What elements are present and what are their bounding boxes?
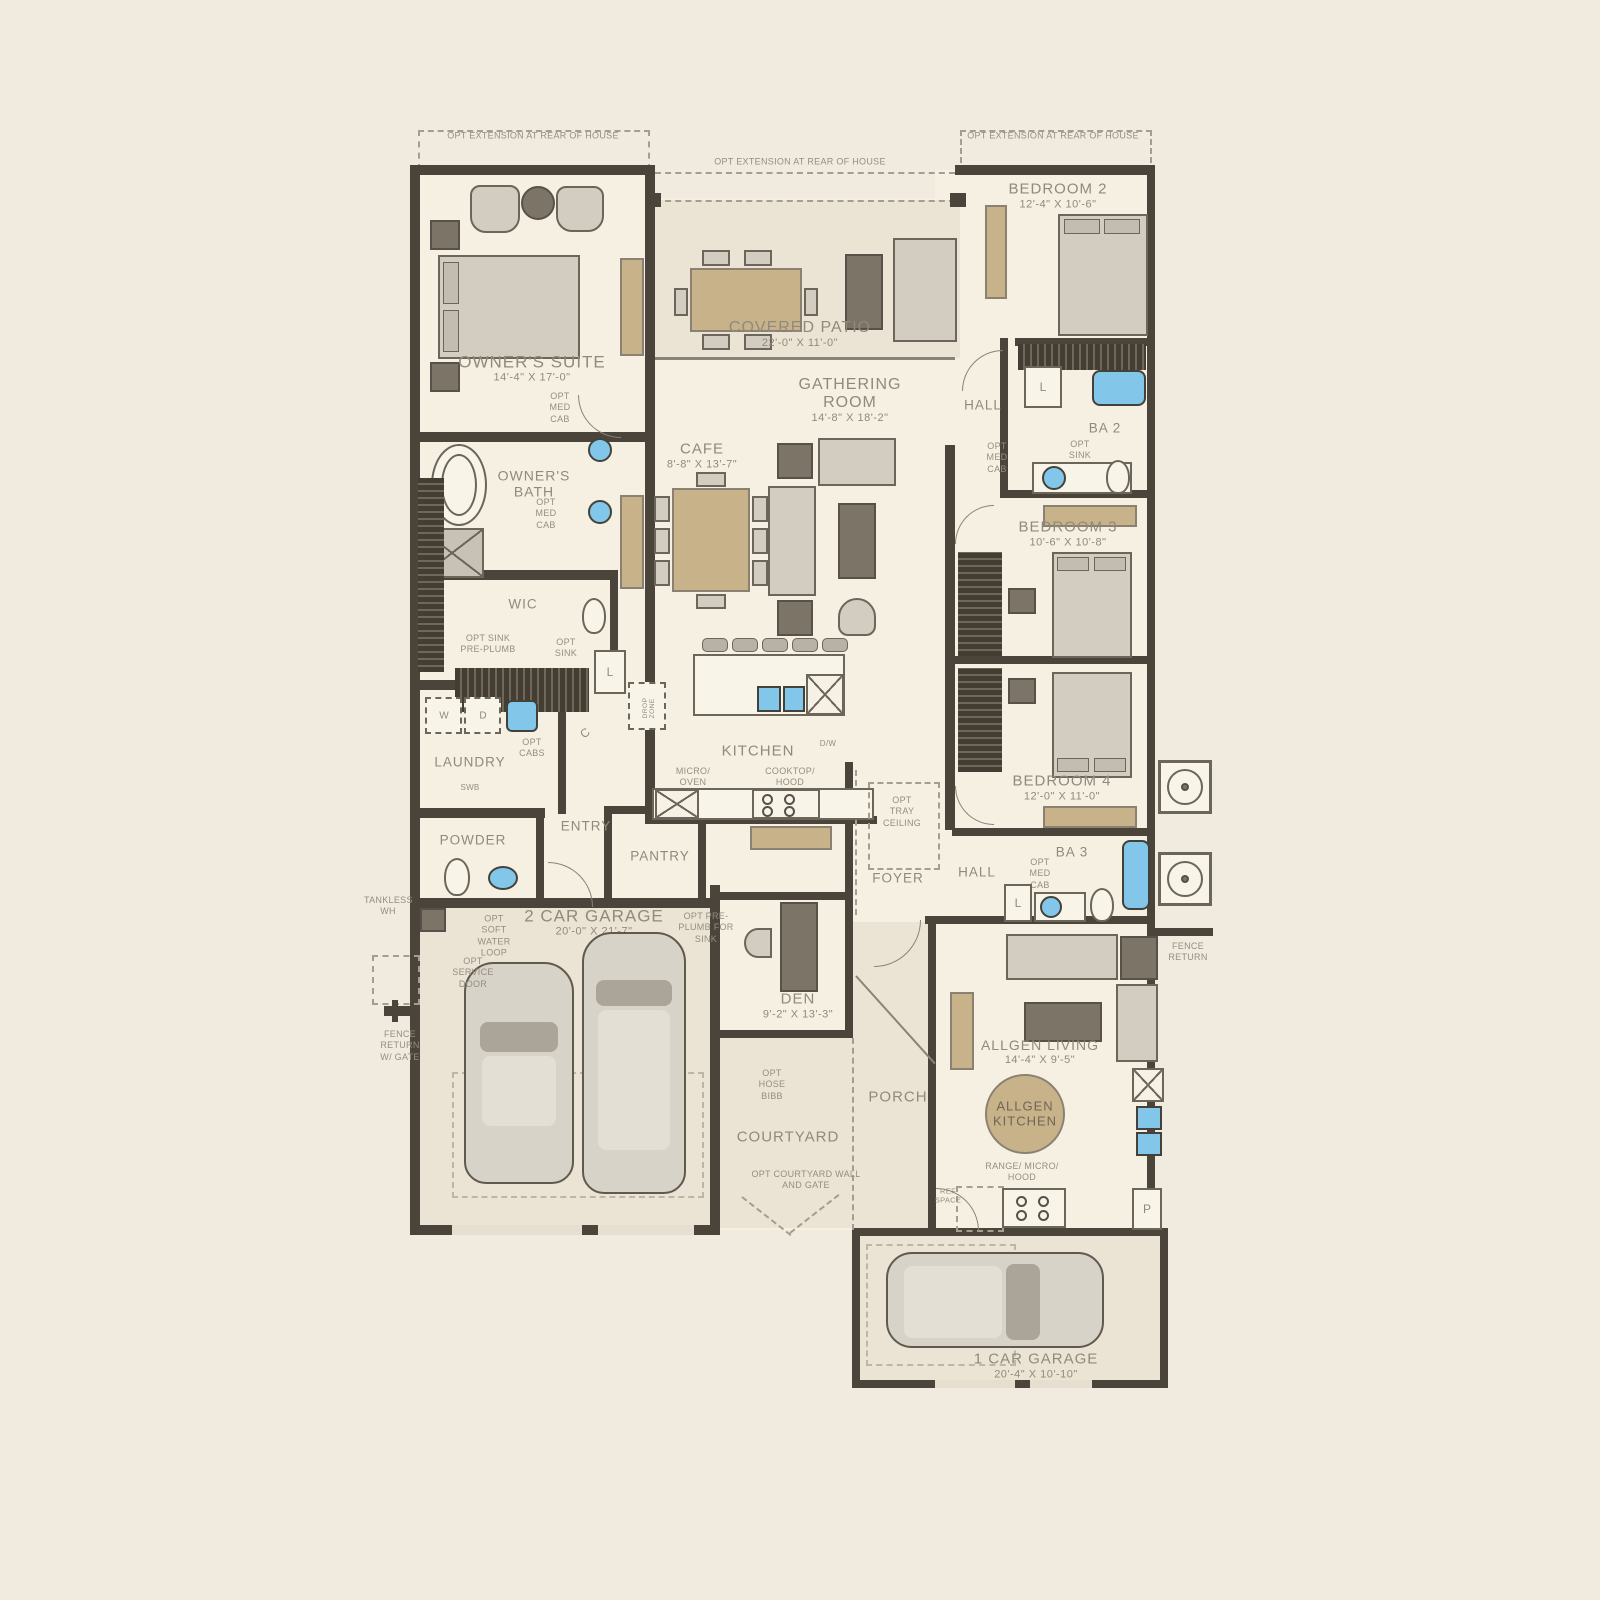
toilet <box>444 858 470 896</box>
room-name: BA 2 <box>1089 420 1122 435</box>
wall <box>710 892 853 900</box>
armchair <box>470 185 520 233</box>
dryer-letter: D <box>479 711 486 722</box>
room-dims: 14'-8" X 18'-2" <box>791 412 909 424</box>
round-table <box>521 186 555 220</box>
wall <box>710 1030 853 1038</box>
porch-slab <box>852 922 932 1230</box>
room-name: OWNER'S SUITE <box>442 352 622 371</box>
sofa <box>818 438 896 486</box>
linen-letter: L <box>607 665 614 679</box>
gathering-label: GATHERING ROOM 14'-8" X 18'-2" <box>791 376 909 424</box>
bar-stool <box>822 638 848 652</box>
room-name: COURTYARD <box>737 1130 840 1147</box>
floor-plan: OPT EXTENSION AT REAR OF HOUSE OPT EXTEN… <box>0 0 1600 1600</box>
toilet <box>1090 888 1114 922</box>
car-hood <box>904 1266 1002 1338</box>
room-dims: 8'-8" X 13'-7" <box>647 458 757 470</box>
cabinet <box>1132 1068 1164 1102</box>
wall <box>645 193 661 207</box>
pantry-letter: P <box>1143 1202 1151 1216</box>
windshield <box>1006 1264 1040 1340</box>
toilet <box>582 598 606 634</box>
owner-bed <box>438 255 580 359</box>
allgen-kitchen-label: ALLGEN KITCHEN <box>987 1099 1063 1128</box>
bench <box>620 258 644 356</box>
fence-return-line <box>1155 928 1213 936</box>
micro-oven-note: MICRO/ OVEN <box>672 766 714 789</box>
sink <box>1042 466 1066 490</box>
garage2-door-opening <box>452 1225 582 1235</box>
bathtub-oval-inner <box>441 454 477 516</box>
opt-courtyard-wall-note: OPT COURTYARD WALL AND GATE <box>751 1169 861 1192</box>
pillow <box>1057 758 1089 772</box>
room-name: BA 3 <box>1056 844 1089 859</box>
courtyard-porch-edge <box>852 1038 854 1230</box>
dresser <box>1043 806 1137 828</box>
closet-rod <box>958 668 1002 772</box>
patio-open-edge <box>655 200 955 202</box>
room-dims: 22'-0" X 11'-0" <box>700 337 900 349</box>
burner-icon <box>784 794 795 805</box>
room-name: KITCHEN <box>722 744 795 761</box>
room-name: DEN <box>743 991 853 1008</box>
kitchenette-sink <box>1136 1106 1162 1130</box>
chair <box>702 250 730 266</box>
room-dims: 14'-4" X 17'-0" <box>442 371 622 383</box>
hall-rear-label: HALL <box>964 397 1002 412</box>
room-dims: 9'-2" X 13'-3" <box>743 1008 853 1020</box>
sideboard <box>620 495 644 589</box>
room-dims: 14'-4" X 9'-5" <box>955 1054 1125 1066</box>
wall <box>852 1228 1168 1236</box>
wall <box>928 916 936 1232</box>
laundry-sink <box>506 700 538 732</box>
room-name: WIC <box>508 596 537 611</box>
bar-stool <box>702 638 728 652</box>
sectional-sofa <box>768 486 816 596</box>
sink <box>1040 896 1062 918</box>
nightstand <box>430 220 460 250</box>
entry-label: ENTRY <box>561 818 612 833</box>
cafe-label: CAFE 8'-8" X 13'-7" <box>647 441 757 470</box>
room-name: FOYER <box>872 870 924 885</box>
chair <box>752 496 768 522</box>
patio-slider <box>655 357 955 360</box>
opt-sink-note: OPT SINK <box>549 637 583 660</box>
cafe-table <box>672 488 750 592</box>
sink <box>588 438 612 462</box>
wic-label: WIC <box>508 596 537 611</box>
chair <box>752 560 768 586</box>
wall <box>945 445 955 830</box>
ac-fan-hub <box>1181 783 1189 791</box>
pedestal-sink <box>488 866 518 890</box>
owners-bath-label: OWNER'S BATH <box>494 468 574 499</box>
wall <box>852 1228 860 1388</box>
den-label: DEN 9'-2" X 13'-3" <box>743 991 853 1020</box>
windshield <box>596 980 672 1006</box>
porch-label: PORCH <box>868 1090 927 1107</box>
wall <box>645 432 655 822</box>
bar-stool <box>732 638 758 652</box>
room-name: BEDROOM 2 <box>978 181 1138 198</box>
wall <box>410 808 545 818</box>
opt-soft-water-note: OPT SOFT WATER LOOP <box>474 914 514 959</box>
pillow <box>443 262 459 304</box>
car-top-view <box>464 962 574 1184</box>
chair <box>696 472 726 487</box>
courtyard-label: COURTYARD <box>737 1130 840 1147</box>
car-roof <box>598 1010 670 1150</box>
wall <box>645 165 655 445</box>
suv-top-view <box>582 932 686 1194</box>
sofa <box>1006 934 1118 980</box>
wall <box>952 828 1155 836</box>
cooktop-hood-note: COOKTOP/ HOOD <box>764 766 816 789</box>
coffee-table <box>1024 1002 1102 1042</box>
room-dims: 12'-4" X 10'-6" <box>978 198 1138 210</box>
opt-service-door-zone <box>372 955 420 1005</box>
pantry-label: PANTRY <box>630 848 690 863</box>
opt-tray-ceiling-note: OPT TRAY CEILING <box>879 795 925 829</box>
kitchen-shelf <box>750 826 832 850</box>
laundry-label: LAUNDRY <box>434 754 505 769</box>
opt-med-cab-note: OPT MED CAB <box>528 497 564 531</box>
foyer-label: FOYER <box>872 870 924 885</box>
dw-note: D/W <box>815 739 841 749</box>
room-name: PORCH <box>868 1090 927 1107</box>
ac-fan-hub <box>1181 875 1189 883</box>
owners-suite-label: OWNER'S SUITE 14'-4" X 17'-0" <box>442 352 622 383</box>
ba3-label: BA 3 <box>1056 844 1089 859</box>
room-name: BEDROOM 3 <box>988 519 1148 536</box>
room-name: ALLGEN KITCHEN <box>987 1099 1063 1128</box>
garage2-door-opening <box>598 1225 694 1235</box>
opt-sink-note: OPT SINK <box>1065 439 1095 462</box>
drop-zone-cabinet: DROP ZONE <box>628 682 666 730</box>
swb-note: SWB <box>460 783 479 793</box>
pillow <box>1094 557 1126 571</box>
wall <box>536 808 544 906</box>
fence-return-gate-note: FENCE RETURN W/ GATE <box>374 1029 426 1063</box>
burner-icon <box>1038 1196 1049 1207</box>
tankless-wh-note: TANKLESS WH <box>364 895 412 918</box>
pillow <box>1094 758 1126 772</box>
burner-icon <box>762 806 773 817</box>
chair <box>654 496 670 522</box>
dresser <box>985 205 1007 299</box>
car-top-view <box>886 1252 1104 1348</box>
burner-icon <box>1016 1210 1027 1221</box>
media-console <box>838 503 876 579</box>
bedroom3-label: BEDROOM 3 10'-6" X 10'-8" <box>988 519 1148 548</box>
chair <box>654 560 670 586</box>
kitchenette-sink <box>1136 1132 1162 1156</box>
patio-sofa <box>893 238 957 342</box>
range <box>1002 1188 1066 1228</box>
room-name: ALLGEN LIVING <box>955 1038 1125 1054</box>
room-name: POWDER <box>440 832 507 847</box>
opt-cabs-note: OPT CABS <box>515 737 549 760</box>
bar-stool <box>792 638 818 652</box>
powder-label: POWDER <box>440 832 507 847</box>
chair <box>654 528 670 554</box>
room-name: PANTRY <box>630 848 690 863</box>
room-dims: 10'-6" X 10'-8" <box>988 536 1148 548</box>
wall <box>410 165 655 175</box>
pillow <box>1104 219 1140 234</box>
opt-extension-note-right: OPT EXTENSION AT REAR OF HOUSE <box>953 130 1153 141</box>
covered-patio-label: COVERED PATIO 22'-0" X 11'-0" <box>700 319 900 349</box>
chair <box>744 250 772 266</box>
kitchen-label: KITCHEN <box>722 744 795 761</box>
desk <box>780 902 818 992</box>
island-sink <box>757 686 781 712</box>
bar-stool <box>762 638 788 652</box>
opt-extension-line-center <box>655 172 955 174</box>
room-name: 1 CAR GARAGE <box>926 1351 1146 1368</box>
desk-chair <box>744 928 772 958</box>
room-name: HALL <box>964 397 1002 412</box>
bathtub <box>1092 370 1146 406</box>
hall-front-label: HALL <box>958 864 996 879</box>
cooktop <box>752 789 820 819</box>
fence-return-note: FENCE RETURN <box>1166 941 1210 964</box>
room-name: COVERED PATIO <box>700 319 900 337</box>
chair <box>674 288 688 316</box>
room-name: HALL <box>958 864 996 879</box>
micro-oven-cabinet <box>655 789 699 819</box>
dishwasher <box>806 674 844 715</box>
bathtub <box>1122 840 1150 910</box>
windshield <box>480 1022 558 1052</box>
linen-letter: L <box>1040 380 1047 394</box>
ba2-label: BA 2 <box>1089 420 1122 435</box>
pillow <box>1057 557 1089 571</box>
room-name: LAUNDRY <box>434 754 505 769</box>
garage1-door-opening <box>935 1380 1015 1388</box>
drop-zone-label: DROP ZONE <box>642 698 656 719</box>
wall <box>955 165 1155 175</box>
bedroom2-label: BEDROOM 2 12'-4" X 10'-6" <box>978 181 1138 210</box>
burner-icon <box>784 806 795 817</box>
nightstand <box>1008 588 1036 614</box>
sink <box>588 500 612 524</box>
burner-icon <box>1016 1196 1027 1207</box>
chair <box>804 288 818 316</box>
washer-letter: W <box>439 711 448 722</box>
nightstand <box>1008 678 1036 704</box>
toilet <box>1106 460 1130 494</box>
island-sink <box>783 686 805 712</box>
chair <box>696 594 726 609</box>
room-dims: 20'-4" X 10'-10" <box>926 1368 1146 1380</box>
opt-sink-preplumb-note: OPT SINK PRE-PLUMB <box>460 633 516 656</box>
side-table <box>777 600 813 636</box>
burner-icon <box>762 794 773 805</box>
garage1-label: 1 CAR GARAGE 20'-4" X 10'-10" <box>926 1351 1146 1380</box>
garage1-door-opening <box>1030 1380 1092 1388</box>
pillow <box>443 310 459 352</box>
closet-rod <box>418 478 444 672</box>
armchair <box>556 186 604 232</box>
allgen-living-label: ALLGEN LIVING 14'-4" X 9'-5" <box>955 1038 1125 1066</box>
burner-icon <box>1038 1210 1049 1221</box>
opt-service-door-note: OPT SERVICE DOOR <box>443 956 503 990</box>
side-table <box>777 443 813 479</box>
opt-extension-note-left: OPT EXTENSION AT REAR OF HOUSE <box>423 130 643 141</box>
opt-extension-note-center: OPT EXTENSION AT REAR OF HOUSE <box>690 156 910 167</box>
fence-post <box>392 1000 398 1022</box>
room-name: ENTRY <box>561 818 612 833</box>
car-roof <box>482 1056 556 1126</box>
ac-unit <box>1158 852 1212 906</box>
room-name: GATHERING ROOM <box>791 376 909 412</box>
room-name: BEDROOM 4 <box>982 773 1142 790</box>
chair <box>752 528 768 554</box>
wall <box>1160 1228 1168 1388</box>
wall <box>410 165 420 1232</box>
wall <box>950 193 966 207</box>
opt-hose-bibb-note: OPT HOSE BIBB <box>754 1068 790 1102</box>
fence-post <box>384 1006 420 1016</box>
ac-unit <box>1158 760 1212 814</box>
room-name: OWNER'S BATH <box>494 468 574 499</box>
side-table <box>1120 936 1158 980</box>
range-micro-hood-note: RANGE/ MICRO/ HOOD <box>982 1161 1062 1184</box>
accent-chair <box>838 598 876 636</box>
room-name: CAFE <box>647 441 757 458</box>
bedroom4-label: BEDROOM 4 12'-0" X 11'-0" <box>982 773 1142 802</box>
opt-preplumb-sink-note: OPT PRE-PLUMB FOR SINK <box>677 911 735 945</box>
tankless-water-heater <box>420 908 446 932</box>
opt-med-cab-note: OPT MED CAB <box>542 391 578 425</box>
linen-letter: L <box>1015 896 1022 910</box>
closet-rod <box>958 552 1002 656</box>
opt-med-cab-note: OPT MED CAB <box>980 441 1014 475</box>
pillow <box>1064 219 1100 234</box>
room-dims: 12'-0" X 11'-0" <box>982 790 1142 802</box>
